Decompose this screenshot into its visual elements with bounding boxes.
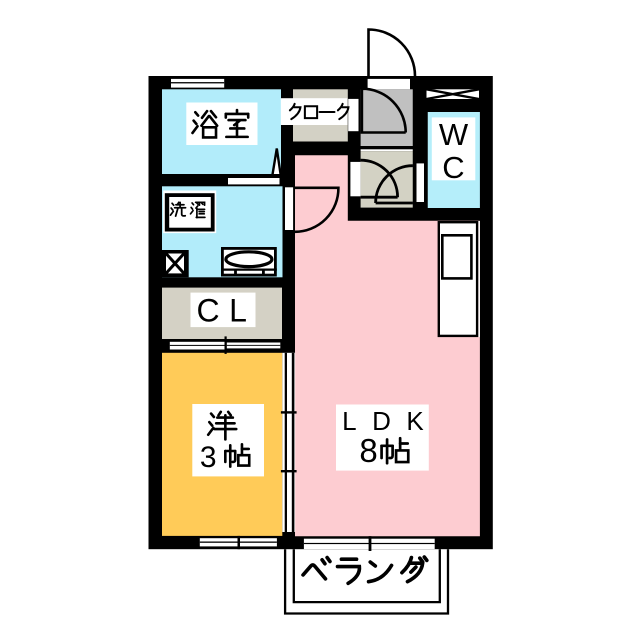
- svg-text:C: C: [442, 150, 464, 185]
- svg-text:L: L: [342, 406, 356, 436]
- svg-text:W: W: [439, 117, 469, 152]
- svg-text:3: 3: [200, 441, 217, 474]
- svg-text:K: K: [406, 406, 424, 436]
- svg-text:C: C: [196, 293, 219, 329]
- svg-text:8: 8: [359, 432, 377, 469]
- svg-text:L: L: [229, 293, 247, 329]
